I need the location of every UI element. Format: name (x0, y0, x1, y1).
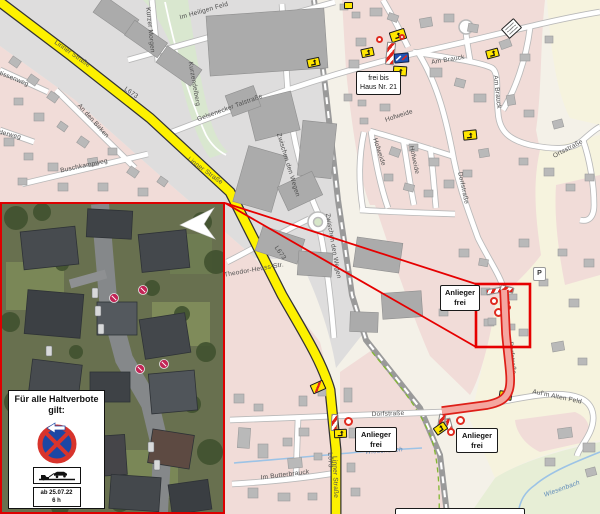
small-sign-icon (344, 2, 353, 9)
note-line: frei (441, 298, 479, 308)
blue-direction-sign-icon (394, 52, 410, 63)
note-line: Anlieger (356, 430, 396, 440)
no-entry-icon (399, 34, 405, 40)
note-frei-bis-haus-21: frei bis Haus Nr. 21 (356, 71, 401, 95)
note-line: frei (457, 441, 497, 451)
note-line: Anlieger (457, 431, 497, 441)
haltverbote-legend: Für alle Haltverbote gilt: ab 25.07.22 6… (8, 390, 105, 509)
note-anlieger-frei-3: Anlieger frei (456, 428, 498, 453)
no-entry-icon (490, 297, 498, 305)
note-line: frei bis (357, 74, 400, 83)
tow-away-sign-icon (33, 467, 81, 484)
note-line: Anlieger (441, 288, 479, 298)
detour-arrow-sign (334, 429, 347, 438)
closure-point-icon (506, 305, 511, 310)
no-entry-icon (494, 308, 503, 317)
detour-arrow-sign (463, 129, 478, 140)
note-line: Haus Nr. 21 (357, 83, 400, 92)
no-entry-icon (376, 36, 383, 43)
date-line: 6 h (34, 497, 80, 505)
note-line: frei (356, 440, 396, 450)
roadworks-map-page: Linner StraßeL673Im Heiligen FeldKurzer … (0, 0, 600, 514)
detour-arrow-sign (498, 390, 512, 401)
note-anlieger-frei-1: Anlieger frei (440, 285, 480, 311)
date-line: ab 25.07.22 (34, 489, 80, 497)
no-entry-icon (344, 417, 353, 426)
no-entry-icon (456, 416, 465, 425)
parking-icon: P (533, 267, 546, 281)
legend-title-2: gilt: (9, 405, 104, 416)
validity-date-sign: ab 25.07.22 6 h (33, 487, 81, 508)
note-anlieger-frei-2: Anlieger frei (355, 427, 397, 452)
no-entry-icon (447, 428, 455, 436)
no-stopping-sign-icon (34, 420, 80, 464)
legend-title: Für alle Haltverbote (9, 394, 104, 405)
note-box-cutoff (395, 508, 525, 514)
